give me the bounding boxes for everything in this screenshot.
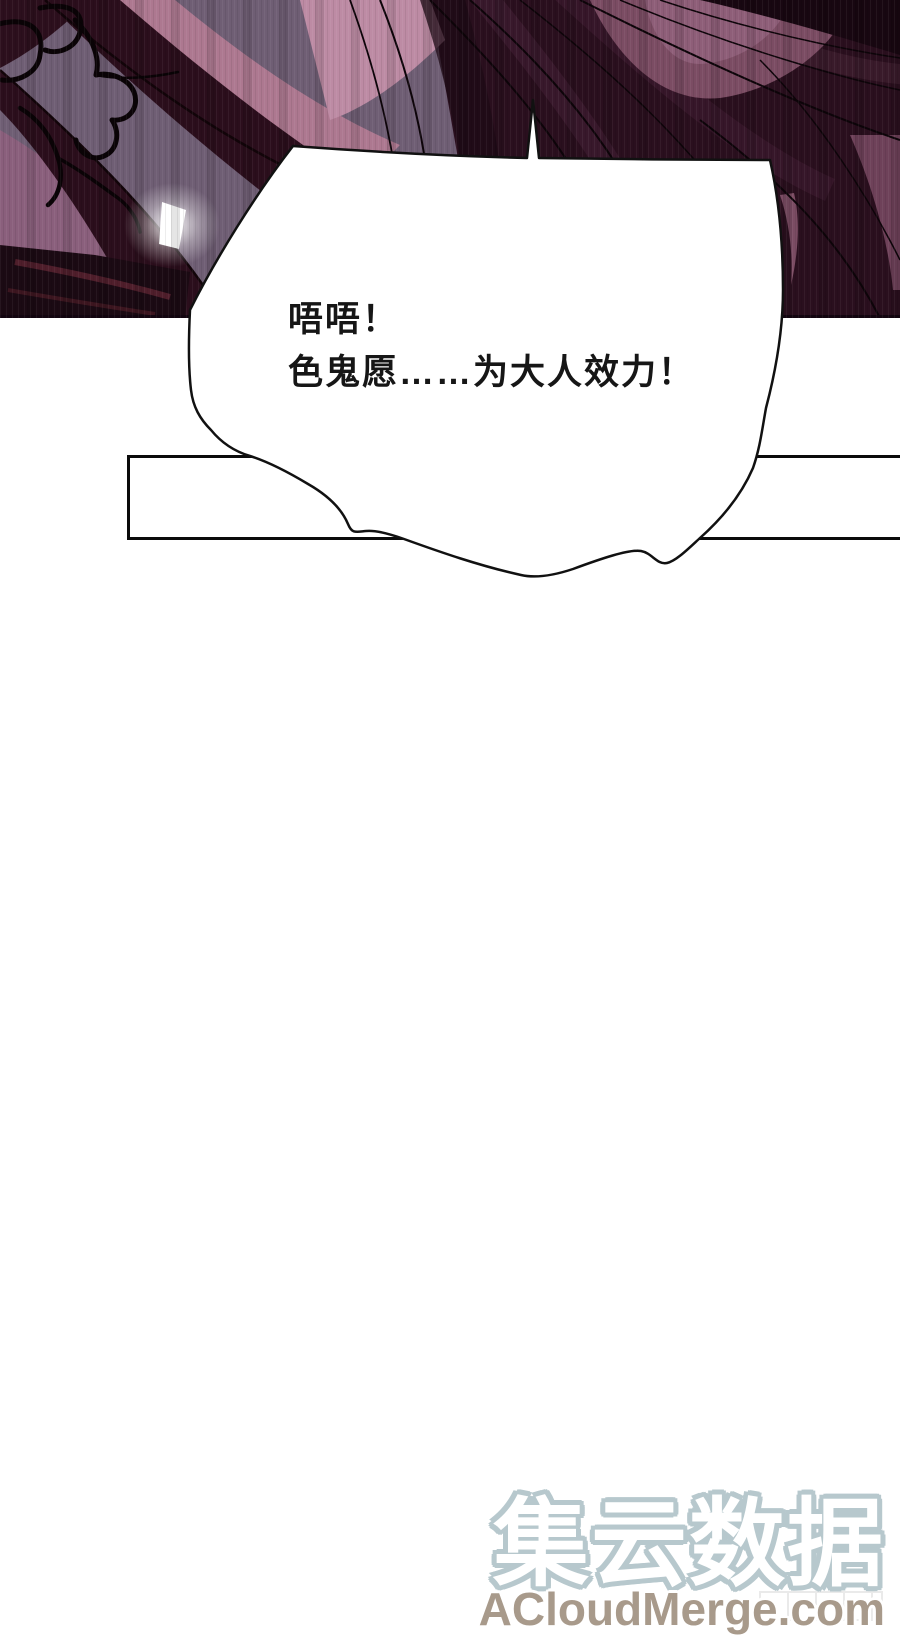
watermark-site-name: 集云数据: [479, 1495, 885, 1596]
watermark-site-url: ACloudMerge.com: [479, 1582, 885, 1636]
speech-line-2: 色鬼愿……为大人效力！: [288, 347, 728, 400]
speech-bubble-text: 唔唔！ 色鬼愿……为大人效力！: [288, 294, 728, 399]
watermark: 集云数据 ACloudMerge.com: [479, 1495, 885, 1636]
comic-page: 唔唔！ 色鬼愿……为大人效力！ 集云数据 ACloudMerge.com: [0, 0, 900, 1650]
speech-line-1: 唔唔！: [288, 294, 728, 347]
